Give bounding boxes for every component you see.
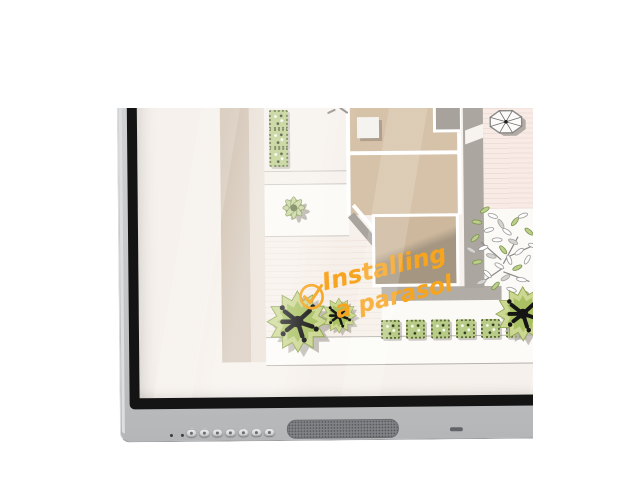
control-button <box>212 429 223 437</box>
parasol-icon <box>482 108 528 142</box>
display-screen: Installing a parasol <box>136 108 533 398</box>
hedge-square <box>269 110 288 129</box>
speaker-grille <box>287 419 399 439</box>
interactive-display: Installing a parasol <box>116 108 533 442</box>
control-button <box>199 429 210 437</box>
brand-logo <box>450 427 463 431</box>
ir-sensor-dot <box>181 434 184 437</box>
skylight <box>357 117 379 138</box>
hedge-square <box>381 320 400 339</box>
control-button <box>251 428 262 436</box>
control-button <box>225 428 236 436</box>
hedge-square <box>269 148 288 167</box>
spiky-shrub-icon <box>494 285 533 348</box>
garden-wall-opening <box>465 124 483 145</box>
control-button <box>238 428 249 436</box>
hedge-square <box>431 319 450 338</box>
patio-divider <box>264 170 346 172</box>
building-gray-porch <box>433 108 460 132</box>
control-button <box>186 429 197 437</box>
hedge-square <box>269 129 288 148</box>
fence-band <box>219 108 251 363</box>
plan-scribble <box>327 109 336 114</box>
status-led-dot <box>170 434 173 437</box>
photo-crop: Installing a parasol <box>0 108 533 480</box>
control-button <box>264 428 275 436</box>
starburst-plant-icon <box>270 188 322 232</box>
hedge-square <box>456 319 475 338</box>
hedge-square <box>406 320 425 339</box>
product-photo: Installing a parasol <box>0 0 640 480</box>
building-room-middle <box>350 154 458 215</box>
